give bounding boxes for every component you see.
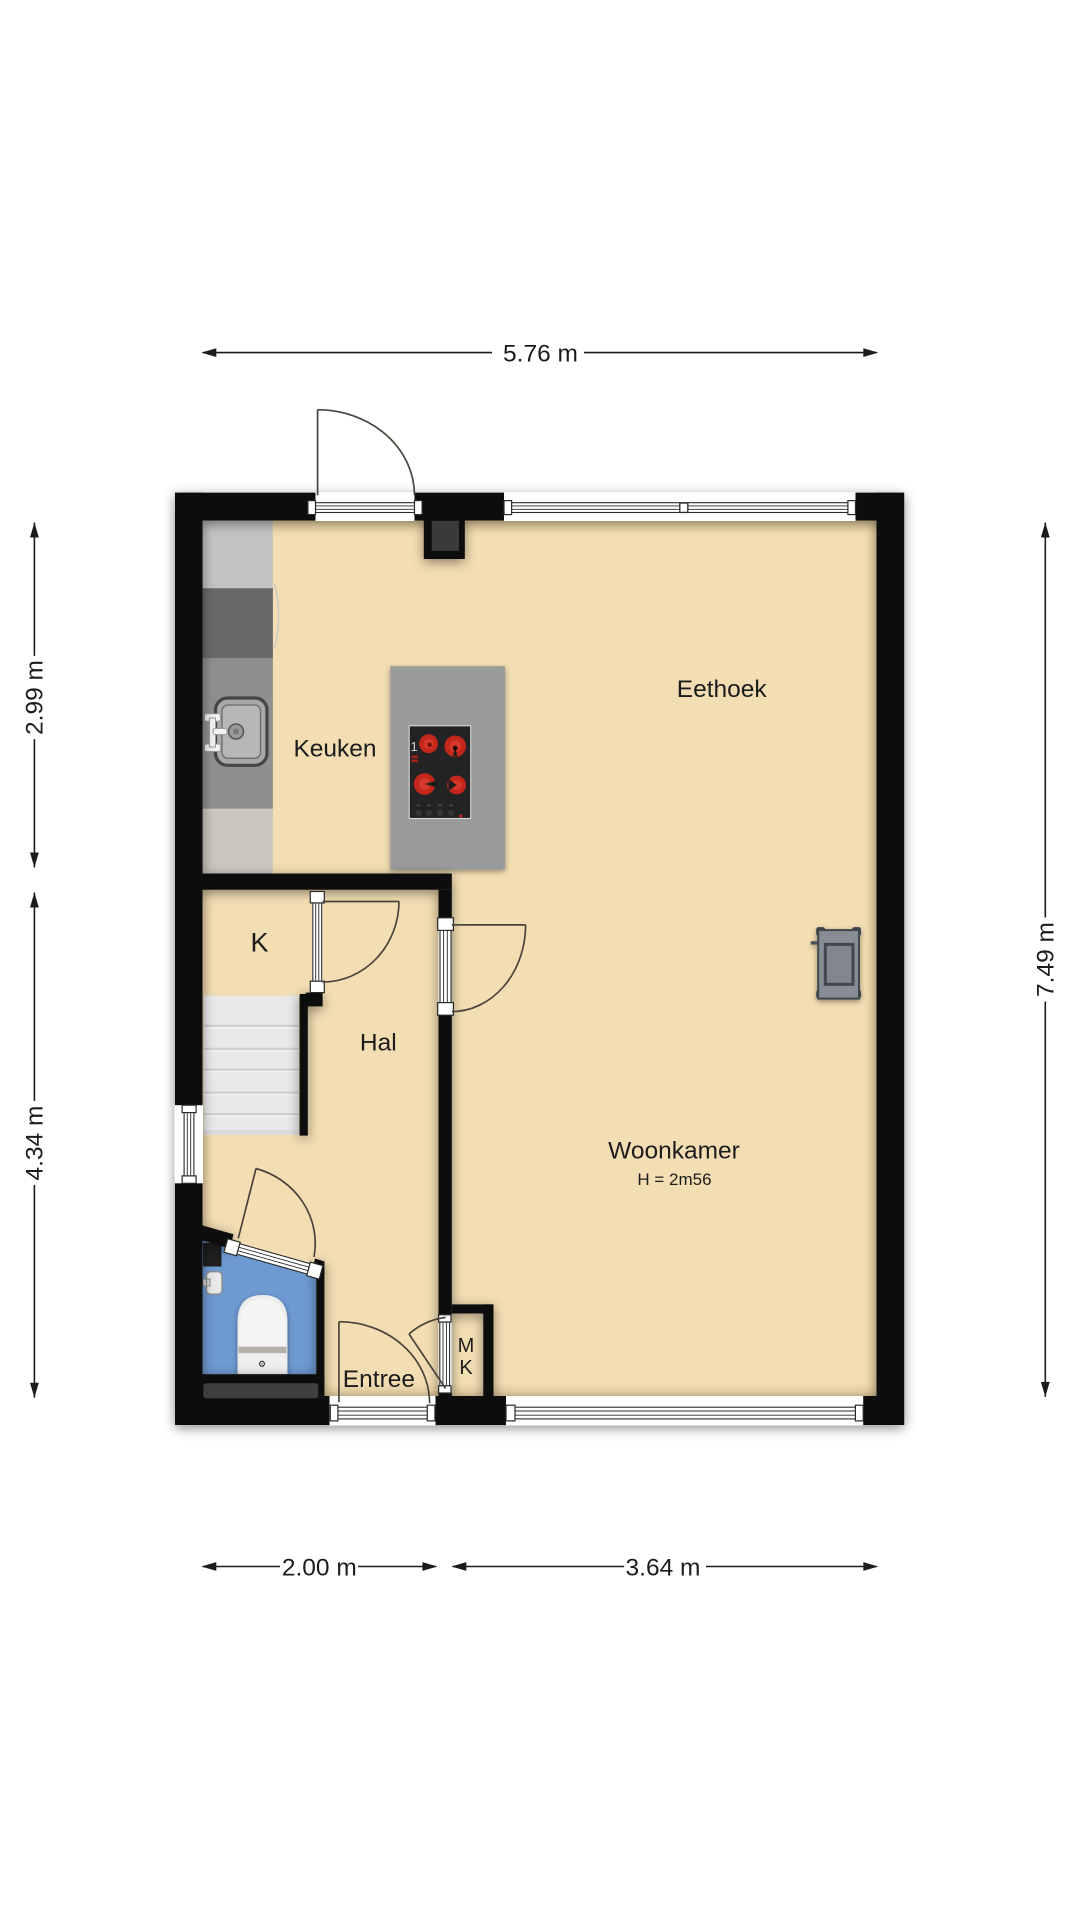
svg-text:3.64 m: 3.64 m xyxy=(626,1554,701,1581)
svg-text:Hal: Hal xyxy=(360,1030,397,1057)
svg-text:Woonkamer: Woonkamer xyxy=(608,1137,740,1164)
svg-text:2.00 m: 2.00 m xyxy=(282,1554,357,1581)
svg-text:K: K xyxy=(459,1357,473,1379)
svg-text:1: 1 xyxy=(411,739,418,754)
svg-text:4.34 m: 4.34 m xyxy=(22,1106,49,1181)
svg-text:H = 2m56: H = 2m56 xyxy=(637,1170,711,1189)
svg-text:Keuken: Keuken xyxy=(293,736,376,763)
svg-text:2.99 m: 2.99 m xyxy=(22,660,49,735)
svg-text:K: K xyxy=(250,927,268,957)
svg-text:5.76 m: 5.76 m xyxy=(503,341,578,368)
svg-text:Eethoek: Eethoek xyxy=(677,676,768,703)
svg-text:⚙: ⚙ xyxy=(258,1359,266,1369)
svg-text:M: M xyxy=(458,1335,475,1357)
svg-text:Entree: Entree xyxy=(343,1366,415,1393)
svg-text:7.49 m: 7.49 m xyxy=(1033,922,1060,997)
